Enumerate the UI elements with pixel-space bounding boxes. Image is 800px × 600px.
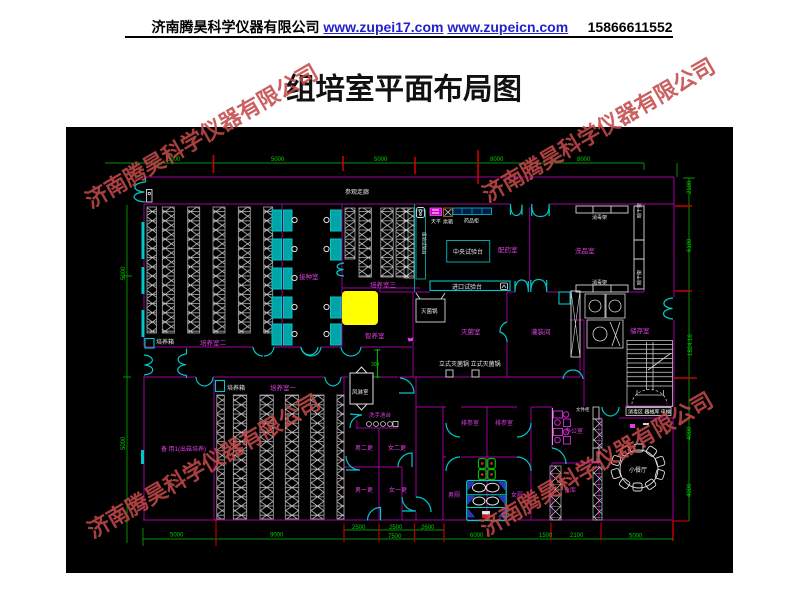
svg-text:进口试验台: 进口试验台 — [452, 283, 482, 291]
svg-text:2500: 2500 — [389, 525, 403, 531]
svg-text:灭菌室: 灭菌室 — [461, 327, 481, 336]
svg-text:女二更: 女二更 — [388, 444, 406, 452]
svg-text:1500: 1500 — [539, 533, 553, 539]
svg-text:中央试验台: 中央试验台 — [453, 248, 483, 256]
svg-text:办公室: 办公室 — [565, 427, 583, 435]
svg-text:排参室: 排参室 — [495, 419, 513, 427]
svg-text:排参室: 排参室 — [461, 419, 479, 427]
svg-text:风淋室: 风淋室 — [352, 388, 369, 396]
svg-text:6100: 6100 — [687, 238, 693, 252]
svg-text:培养室二: 培养室二 — [200, 338, 227, 347]
svg-text:女一更: 女一更 — [389, 486, 407, 494]
svg-text:文件柜: 文件柜 — [576, 406, 590, 413]
svg-text:智养室: 智养室 — [365, 331, 385, 340]
svg-text:培养室一: 培养室一 — [270, 383, 297, 392]
svg-text:7500: 7500 — [388, 534, 402, 540]
svg-text:晾干架: 晾干架 — [636, 270, 643, 285]
svg-text:烘箱: 烘箱 — [443, 219, 453, 226]
svg-text:5000: 5000 — [629, 534, 643, 540]
svg-text:2600: 2600 — [421, 525, 435, 531]
svg-text:4000: 4000 — [687, 483, 693, 497]
svg-text:洗品室: 洗品室 — [575, 246, 595, 255]
svg-text:300: 300 — [371, 362, 380, 368]
svg-text:5000: 5000 — [170, 533, 184, 539]
svg-text:培养箱: 培养箱 — [156, 338, 174, 346]
svg-text:小餐厅: 小餐厅 — [629, 466, 647, 474]
svg-text:立式灭菌锅 立式灭菌锅: 立式灭菌锅 立式灭菌锅 — [439, 360, 501, 368]
svg-text:8000: 8000 — [490, 157, 504, 163]
svg-text:培养箱: 培养箱 — [227, 384, 245, 392]
svg-text:男二更: 男二更 — [355, 445, 373, 452]
svg-text:天平: 天平 — [431, 219, 441, 225]
svg-text:培养室三: 培养室三 — [370, 280, 397, 289]
svg-text:消毒架: 消毒架 — [592, 279, 607, 286]
svg-text:配药室: 配药室 — [498, 245, 518, 254]
svg-text:药品柜: 药品柜 — [464, 218, 479, 225]
svg-text:灭菌锅: 灭菌锅 — [421, 307, 438, 315]
svg-text:晾干架: 晾干架 — [636, 203, 643, 218]
svg-text:接种室: 接种室 — [299, 272, 319, 281]
svg-text:消毒架: 消毒架 — [592, 214, 607, 221]
svg-text:5000: 5000 — [374, 157, 388, 163]
svg-text:参观走廊: 参观走廊 — [345, 188, 369, 196]
svg-text:组培试验台: 组培试验台 — [421, 232, 428, 255]
svg-text:6000: 6000 — [470, 533, 484, 539]
svg-text:5000: 5000 — [121, 266, 127, 280]
svg-text:5000: 5000 — [271, 157, 285, 163]
svg-text:灌装间: 灌装间 — [531, 327, 551, 336]
svg-text:储存室: 储存室 — [630, 326, 650, 335]
svg-text:男一更: 男一更 — [355, 487, 373, 494]
svg-text:2100: 2100 — [687, 180, 693, 194]
svg-text:5000: 5000 — [121, 436, 127, 450]
svg-text:洗手池台: 洗手池台 — [369, 411, 392, 419]
svg-text:2500: 2500 — [352, 525, 366, 531]
svg-text:男厕: 男厕 — [448, 492, 460, 499]
svg-text:2100: 2100 — [570, 533, 584, 539]
svg-text:1824.16: 1824.16 — [688, 334, 694, 356]
svg-text:9000: 9000 — [270, 533, 284, 539]
